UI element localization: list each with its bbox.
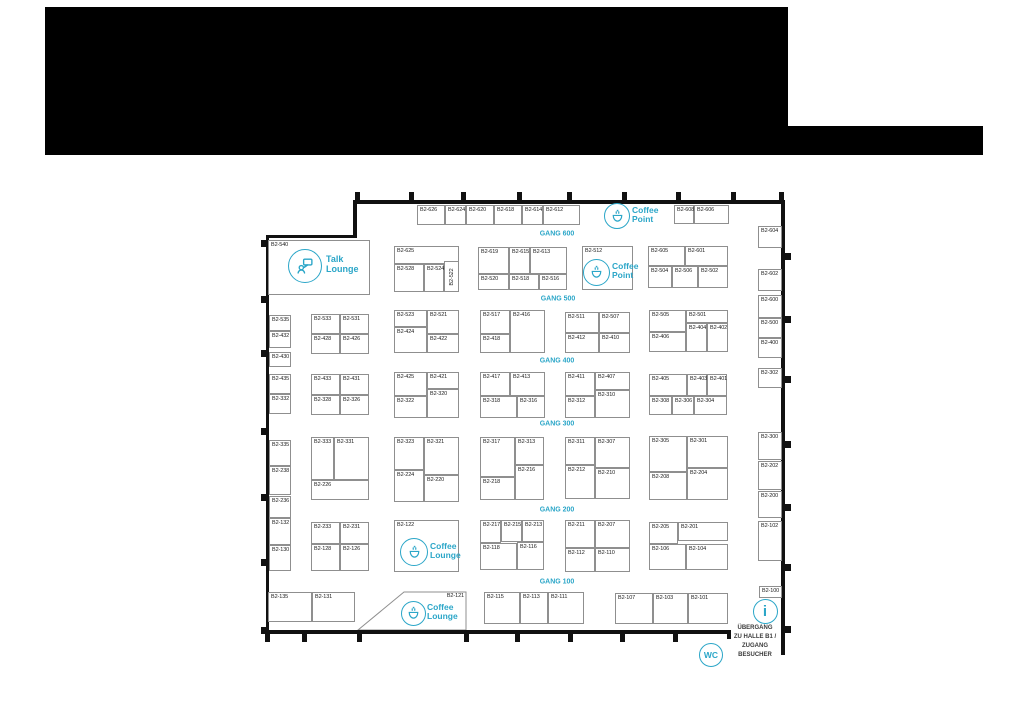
booth-label: B2-313 <box>518 439 535 445</box>
booth-B2-613[interactable]: B2-613 <box>530 247 567 274</box>
booth-B2-323[interactable]: B2-323 <box>394 437 424 470</box>
booth-label: B2-601 <box>688 248 705 254</box>
booth-B2-238[interactable]: B2-238 <box>269 466 291 495</box>
booth-B2-533[interactable]: B2-533 <box>311 314 340 334</box>
booth-label: B2-321 <box>427 439 444 445</box>
booth-label: B2-318 <box>483 398 500 404</box>
area-label: CoffeePoint <box>612 262 638 280</box>
booth-label: B2-518 <box>512 276 529 282</box>
booth-B2-328[interactable]: B2-328 <box>311 395 340 415</box>
booth-B2-531[interactable]: B2-531 <box>340 314 369 334</box>
wall-column-tick <box>785 441 791 448</box>
wall-column-tick <box>785 316 791 323</box>
wall-column-tick <box>265 634 270 642</box>
booth-B2-218[interactable]: B2-218 <box>480 477 515 500</box>
booth-B2-403[interactable]: B2-403 <box>687 374 707 396</box>
booth-B2-207[interactable]: B2-207 <box>595 520 630 548</box>
booth-label: B2-115 <box>487 594 504 600</box>
booth-label: B2-308 <box>652 398 669 404</box>
booth-B2-528[interactable]: B2-528 <box>394 264 424 292</box>
booth-label: B2-412 <box>568 335 585 341</box>
booth-label: B2-236 <box>272 498 289 504</box>
booth-label: B2-522 <box>449 268 455 285</box>
booth-label: B2-433 <box>314 376 331 382</box>
booth-label: B2-126 <box>343 546 360 552</box>
booth-B2-606[interactable]: B2-606 <box>694 205 729 224</box>
wall-column-tick <box>261 494 267 501</box>
booth-label: B2-613 <box>533 249 550 255</box>
booth-label: B2-135 <box>271 594 288 600</box>
booth-B2-600[interactable]: B2-600 <box>758 295 782 318</box>
booth-label: B2-523 <box>397 312 414 318</box>
booth-B2-300[interactable]: B2-300 <box>758 432 782 460</box>
booth-B2-226[interactable]: B2-226 <box>311 480 369 500</box>
booth-label: B2-401 <box>710 376 727 382</box>
booth-label: B2-428 <box>314 336 331 342</box>
booth-label: B2-132 <box>272 520 289 526</box>
booth-B2-624[interactable]: B2-624 <box>445 205 466 225</box>
booth-label: B2-322 <box>397 398 414 404</box>
booth-label: B2-204 <box>690 470 707 476</box>
booth-label: B2-101 <box>691 595 708 601</box>
booth-label: B2-301 <box>690 438 707 444</box>
booth-B2-201[interactable]: B2-201 <box>678 522 728 541</box>
booth-B2-130[interactable]: B2-130 <box>269 545 291 571</box>
booth-label: B2-618 <box>497 207 514 213</box>
booth-label: B2-533 <box>314 316 331 322</box>
booth-B2-116[interactable]: B2-116 <box>517 542 544 570</box>
booth-B2-132[interactable]: B2-132 <box>269 518 291 545</box>
booth-B2-311[interactable]: B2-311 <box>565 437 595 465</box>
wall-segment <box>353 200 357 238</box>
booth-label: B2-326 <box>343 397 360 403</box>
booth-label: B2-403 <box>690 376 707 382</box>
booth-B2-413[interactable]: B2-413 <box>510 372 545 396</box>
booth-B2-318[interactable]: B2-318 <box>480 396 517 418</box>
booth-label: B2-316 <box>520 398 537 404</box>
booth-B2-507[interactable]: B2-507 <box>599 312 630 333</box>
booth-B2-424[interactable]: B2-424 <box>394 327 427 353</box>
booth-label: B2-122 <box>397 522 414 528</box>
booth-label: B2-416 <box>513 312 530 318</box>
booth-B2-501[interactable]: B2-501 <box>686 310 728 323</box>
booth-B2-106[interactable]: B2-106 <box>649 544 686 570</box>
booth-B2-432[interactable]: B2-432 <box>269 331 291 348</box>
coffee-lounge-icon[interactable] <box>401 601 426 626</box>
booth-label: B2-606 <box>697 207 714 213</box>
booth-B2-115[interactable]: B2-115 <box>484 592 520 624</box>
booth-label: B2-113 <box>523 594 540 600</box>
talk-lounge-icon[interactable] <box>288 249 322 283</box>
booth-label: B2-116 <box>520 544 537 550</box>
wall-column-tick <box>785 564 791 571</box>
booth-label: B2-205 <box>652 524 669 530</box>
booth-B2-431[interactable]: B2-431 <box>340 374 369 395</box>
booth-B2-110[interactable]: B2-110 <box>595 548 630 572</box>
booth-B2-107[interactable]: B2-107 <box>615 593 653 624</box>
booth-label: B2-418 <box>483 336 500 342</box>
booth-B2-407[interactable]: B2-407 <box>595 372 630 390</box>
booth-B2-113[interactable]: B2-113 <box>520 592 548 624</box>
booth-B2-321[interactable]: B2-321 <box>424 437 459 475</box>
booth-label: B2-404 <box>689 325 706 331</box>
booth-B2-618[interactable]: B2-618 <box>494 205 522 225</box>
booth-B2-233[interactable]: B2-233 <box>311 522 340 544</box>
booth-label: B2-218 <box>483 479 500 485</box>
wall-column-tick <box>515 634 520 642</box>
area-label: CoffeeLounge <box>427 603 458 621</box>
booth-label: B2-328 <box>314 397 331 403</box>
booth-B2-317[interactable]: B2-317 <box>480 437 515 477</box>
wall-column-tick <box>785 253 791 260</box>
booth-B2-131[interactable]: B2-131 <box>312 592 355 622</box>
booth-B2-418[interactable]: B2-418 <box>480 334 510 353</box>
booth-B2-204[interactable]: B2-204 <box>687 468 728 500</box>
booth-label: B2-516 <box>542 276 559 282</box>
booth-B2-111[interactable]: B2-111 <box>548 592 584 624</box>
booth-B2-301[interactable]: B2-301 <box>687 436 728 468</box>
booth-label: B2-615 <box>512 249 529 255</box>
wall-column-tick <box>261 296 267 303</box>
booth-label: B2-505 <box>652 312 669 318</box>
booth-label: B2-200 <box>761 493 778 499</box>
booth-label: B2-104 <box>689 546 706 552</box>
wc-label: WC <box>704 650 718 660</box>
booth-B2-521[interactable]: B2-521 <box>427 310 459 334</box>
booth-label: B2-130 <box>272 547 289 553</box>
booth-label: B2-112 <box>568 550 585 556</box>
booth-label: B2-411 <box>568 374 585 380</box>
booth-B2-335[interactable]: B2-335 <box>269 440 291 466</box>
booth-B2-200[interactable]: B2-200 <box>758 491 782 518</box>
booth-B2-304[interactable]: B2-304 <box>694 396 727 415</box>
booth-B2-308[interactable]: B2-308 <box>649 396 672 415</box>
booth-B2-626[interactable]: B2-626 <box>417 205 445 225</box>
booth-label: B2-521 <box>430 312 447 318</box>
booth-label: B2-302 <box>761 370 778 376</box>
booth-label: B2-208 <box>652 474 669 480</box>
booth-label: B2-432 <box>272 333 289 339</box>
booth-B2-522[interactable]: B2-522 <box>444 261 459 292</box>
booth-label: B2-413 <box>513 374 530 380</box>
booth-B2-417[interactable]: B2-417 <box>480 372 510 396</box>
booth-label: B2-216 <box>518 467 535 473</box>
booth-B2-310[interactable]: B2-310 <box>595 390 630 418</box>
booth-label: B2-212 <box>568 467 585 473</box>
wall-column-tick <box>785 504 791 511</box>
header-redacted-block <box>788 126 983 155</box>
booth-B2-410[interactable]: B2-410 <box>599 333 630 353</box>
booth-label: B2-511 <box>568 314 585 320</box>
booth-B2-411[interactable]: B2-411 <box>565 372 595 396</box>
booth-label: B2-106 <box>652 546 669 552</box>
booth-B2-604[interactable]: B2-604 <box>758 226 782 248</box>
booth-label: B2-215 <box>504 522 521 528</box>
wall-column-tick <box>568 634 573 642</box>
booth-label: B2-102 <box>761 523 778 529</box>
booth-label: B2-520 <box>481 276 498 282</box>
booth-label: B2-300 <box>761 434 778 440</box>
wall-column-tick <box>261 350 267 357</box>
booth-label: B2-614 <box>525 207 542 213</box>
booth-B2-422[interactable]: B2-422 <box>427 334 459 353</box>
booth-B2-220[interactable]: B2-220 <box>424 475 459 502</box>
booth-B2-212[interactable]: B2-212 <box>565 465 595 499</box>
booth-label: B2-512 <box>585 248 602 254</box>
booth-B2-428[interactable]: B2-428 <box>311 334 340 354</box>
booth-B2-331[interactable]: B2-331 <box>334 437 369 480</box>
booth-label: B2-535 <box>272 317 289 323</box>
booth-B2-405[interactable]: B2-405 <box>649 374 687 396</box>
booth-B2-112[interactable]: B2-112 <box>565 548 595 572</box>
aisle-label: GANG 200 <box>540 507 575 514</box>
booth-label: B2-317 <box>483 439 500 445</box>
booth-B2-126[interactable]: B2-126 <box>340 544 369 571</box>
booth-B2-128[interactable]: B2-128 <box>311 544 340 571</box>
booth-label: B2-624 <box>448 207 465 213</box>
booth-label: B2-531 <box>343 316 360 322</box>
booth-label: B2-405 <box>652 376 669 382</box>
booth-label: B2-310 <box>598 392 615 398</box>
aisle-label: GANG 100 <box>540 579 575 586</box>
aisle-label: GANG 400 <box>540 358 575 365</box>
booth-label: B2-612 <box>546 207 563 213</box>
booth-B2-518[interactable]: B2-518 <box>509 274 539 290</box>
booth-label: B2-417 <box>483 374 500 380</box>
booth-label: B2-307 <box>598 439 615 445</box>
booth-label: B2-524 <box>427 266 444 272</box>
booth-B2-215[interactable]: B2-215 <box>501 520 522 542</box>
wall-column-tick <box>461 192 466 201</box>
booth-B2-307[interactable]: B2-307 <box>595 437 630 468</box>
booth-B2-602[interactable]: B2-602 <box>758 269 782 291</box>
booth-B2-333[interactable]: B2-333 <box>311 437 334 480</box>
booth-label: B2-226 <box>314 482 331 488</box>
booth-B2-406[interactable]: B2-406 <box>649 332 686 352</box>
booth-label: B2-128 <box>314 546 331 552</box>
booth-label: B2-131 <box>315 594 332 600</box>
booth-B2-615[interactable]: B2-615 <box>509 247 530 274</box>
booth-B2-305[interactable]: B2-305 <box>649 436 687 472</box>
booth-B2-224[interactable]: B2-224 <box>394 470 424 502</box>
booth-B2-506[interactable]: B2-506 <box>672 266 698 288</box>
booth-B2-216[interactable]: B2-216 <box>515 465 544 500</box>
booth-label: B2-600 <box>761 297 778 303</box>
booth-B2-210[interactable]: B2-210 <box>595 468 630 499</box>
booth-label: B2-625 <box>397 248 414 254</box>
aisle-label: GANG 600 <box>540 231 575 238</box>
booth-B2-620[interactable]: B2-620 <box>466 205 494 225</box>
booth-label: B2-210 <box>598 470 615 476</box>
booth-B2-430[interactable]: B2-430 <box>269 352 291 367</box>
booth-label: B2-435 <box>272 376 289 382</box>
booth-label: B2-231 <box>343 524 360 530</box>
booth-label: B2-311 <box>568 439 585 445</box>
info-icon[interactable]: i <box>753 599 778 624</box>
area-label: TalkLounge <box>326 255 359 274</box>
booth-label: B2-626 <box>420 207 437 213</box>
booth-label: B2-220 <box>427 477 444 483</box>
booth-B2-421[interactable]: B2-421 <box>427 372 459 389</box>
coffee-lounge-icon[interactable] <box>400 538 428 566</box>
wall-column-tick <box>464 634 469 642</box>
coffee-point-icon[interactable] <box>604 203 630 229</box>
booth-label: B2-504 <box>651 268 668 274</box>
wall-segment <box>267 235 357 238</box>
wall-column-tick <box>779 192 784 201</box>
wall-column-tick <box>409 192 414 201</box>
booth-label: B2-605 <box>651 248 668 254</box>
booth-B2-306[interactable]: B2-306 <box>672 396 694 415</box>
booth-B2-103[interactable]: B2-103 <box>653 593 688 624</box>
booth-label: B2-202 <box>761 463 778 469</box>
booth-label: B2-430 <box>272 354 289 360</box>
booth-B2-612[interactable]: B2-612 <box>543 205 580 225</box>
booth-B2-322[interactable]: B2-322 <box>394 396 427 418</box>
booth-label: B2-306 <box>675 398 692 404</box>
booth-B2-500[interactable]: B2-500 <box>758 318 782 338</box>
booth-label: B2-111 <box>551 594 567 600</box>
wall-segment <box>264 630 731 634</box>
booth-B2-213[interactable]: B2-213 <box>522 520 544 542</box>
booth-label: B2-335 <box>272 442 289 448</box>
coffee-point-icon[interactable] <box>583 259 610 286</box>
wall-column-tick <box>676 192 681 201</box>
booth-B2-205[interactable]: B2-205 <box>649 522 678 544</box>
booth-label: B2-323 <box>397 439 414 445</box>
booth-label: B2-506 <box>675 268 692 274</box>
booth-label: B2-213 <box>525 522 542 528</box>
booth-B2-100[interactable]: B2-100 <box>759 586 782 598</box>
booth-B2-316[interactable]: B2-316 <box>517 396 545 418</box>
booth-B2-236[interactable]: B2-236 <box>269 496 291 518</box>
booth-label: B2-602 <box>761 271 778 277</box>
booth-B2-102[interactable]: B2-102 <box>758 521 782 561</box>
booth-B2-326[interactable]: B2-326 <box>340 395 369 415</box>
wall-column-tick <box>357 634 362 642</box>
booth-B2-425[interactable]: B2-425 <box>394 372 427 396</box>
wall-column-tick <box>261 627 267 634</box>
wall-column-tick <box>673 634 678 642</box>
wall-column-tick <box>785 376 791 383</box>
booth-B2-312[interactable]: B2-312 <box>565 396 595 418</box>
booth-label: B2-211 <box>568 522 585 528</box>
booth-B2-433[interactable]: B2-433 <box>311 374 340 395</box>
booth-B2-313[interactable]: B2-313 <box>515 437 544 465</box>
booth-B2-404[interactable]: B2-404 <box>686 323 707 352</box>
booth-B2-400[interactable]: B2-400 <box>758 338 782 358</box>
booth-label: B2-421 <box>430 374 447 380</box>
booth-B2-202[interactable]: B2-202 <box>758 461 782 490</box>
booth-label: B2-121 <box>447 593 464 599</box>
booth-B2-208[interactable]: B2-208 <box>649 472 687 500</box>
booth-B2-416[interactable]: B2-416 <box>510 310 545 353</box>
booth-B2-608[interactable]: B2-608 <box>674 205 694 224</box>
wall-column-tick <box>261 240 267 247</box>
booth-label: B2-304 <box>697 398 714 404</box>
booth-label: B2-217 <box>483 522 500 528</box>
booth-B2-101[interactable]: B2-101 <box>688 593 728 624</box>
booth-B2-605[interactable]: B2-605 <box>648 246 685 266</box>
booth-B2-412[interactable]: B2-412 <box>565 333 599 353</box>
booth-B2-614[interactable]: B2-614 <box>522 205 543 225</box>
booth-label: B2-332 <box>272 396 289 402</box>
booth-B2-435[interactable]: B2-435 <box>269 374 291 394</box>
booth-label: B2-410 <box>602 335 619 341</box>
booth-B2-535[interactable]: B2-535 <box>269 315 291 331</box>
booth-label: B2-431 <box>343 376 360 382</box>
booth-label: B2-118 <box>483 545 500 551</box>
booth-label: B2-619 <box>481 249 498 255</box>
booth-label: B2-305 <box>652 438 669 444</box>
booth-B2-401[interactable]: B2-401 <box>707 374 727 396</box>
booth-label: B2-207 <box>598 522 615 528</box>
booth-label: B2-604 <box>761 228 778 234</box>
booth-label: B2-540 <box>271 242 288 248</box>
booth-B2-601[interactable]: B2-601 <box>685 246 728 266</box>
booth-label: B2-320 <box>430 391 447 397</box>
booth-label: B2-407 <box>598 374 615 380</box>
booth-label: B2-426 <box>343 336 360 342</box>
booth-label: B2-110 <box>598 550 615 556</box>
booth-B2-502[interactable]: B2-502 <box>698 266 728 288</box>
wall-column-tick <box>620 634 625 642</box>
booth-label: B2-502 <box>701 268 718 274</box>
wall-column-tick <box>355 192 360 201</box>
booth-B2-231[interactable]: B2-231 <box>340 522 369 544</box>
wall-column-tick <box>517 192 522 201</box>
booth-B2-302[interactable]: B2-302 <box>758 368 782 388</box>
wall-column-tick <box>567 192 572 201</box>
booth-label: B2-425 <box>397 374 414 380</box>
booth-label: B2-501 <box>689 312 706 318</box>
booth-label: B2-201 <box>681 524 698 530</box>
booth-label: B2-424 <box>397 329 414 335</box>
booth-B2-402[interactable]: B2-402 <box>707 323 728 352</box>
booth-B2-523[interactable]: B2-523 <box>394 310 427 327</box>
booth-label: B2-312 <box>568 398 585 404</box>
booth-B2-619[interactable]: B2-619 <box>478 247 509 274</box>
header-redacted-block <box>45 7 788 155</box>
booth-label: B2-224 <box>397 472 414 478</box>
booth-label: B2-620 <box>469 207 486 213</box>
booth-B2-332[interactable]: B2-332 <box>269 394 291 414</box>
booth-B2-217[interactable]: B2-217 <box>480 520 501 543</box>
booth-B2-516[interactable]: B2-516 <box>539 274 567 290</box>
booth-label: B2-500 <box>761 320 778 326</box>
booth-B2-504[interactable]: B2-504 <box>648 266 672 288</box>
booth-B2-505[interactable]: B2-505 <box>649 310 686 332</box>
booth-B2-104[interactable]: B2-104 <box>686 544 728 570</box>
booth-B2-118[interactable]: B2-118 <box>480 543 517 570</box>
booth-B2-135[interactable]: B2-135 <box>268 592 312 622</box>
booth-label: B2-528 <box>397 266 414 272</box>
booth-B2-524[interactable]: B2-524 <box>424 264 444 292</box>
booth-label: B2-507 <box>602 314 619 320</box>
booth-B2-211[interactable]: B2-211 <box>565 520 595 548</box>
wall-column-tick <box>261 559 267 566</box>
booth-label: B2-400 <box>761 340 778 346</box>
aisle-label: GANG 300 <box>540 421 575 428</box>
booth-label: B2-100 <box>762 588 779 594</box>
booth-B2-511[interactable]: B2-511 <box>565 312 599 333</box>
booth-B2-520[interactable]: B2-520 <box>478 274 509 290</box>
booth-B2-426[interactable]: B2-426 <box>340 334 369 354</box>
booth-B2-517[interactable]: B2-517 <box>480 310 510 334</box>
hall-transition-label: ÜBERGANGZU HALLE B1 /ZUGANGBESUCHER <box>720 624 790 660</box>
booth-B2-320[interactable]: B2-320 <box>427 389 459 418</box>
booth-label: B2-422 <box>430 336 447 342</box>
